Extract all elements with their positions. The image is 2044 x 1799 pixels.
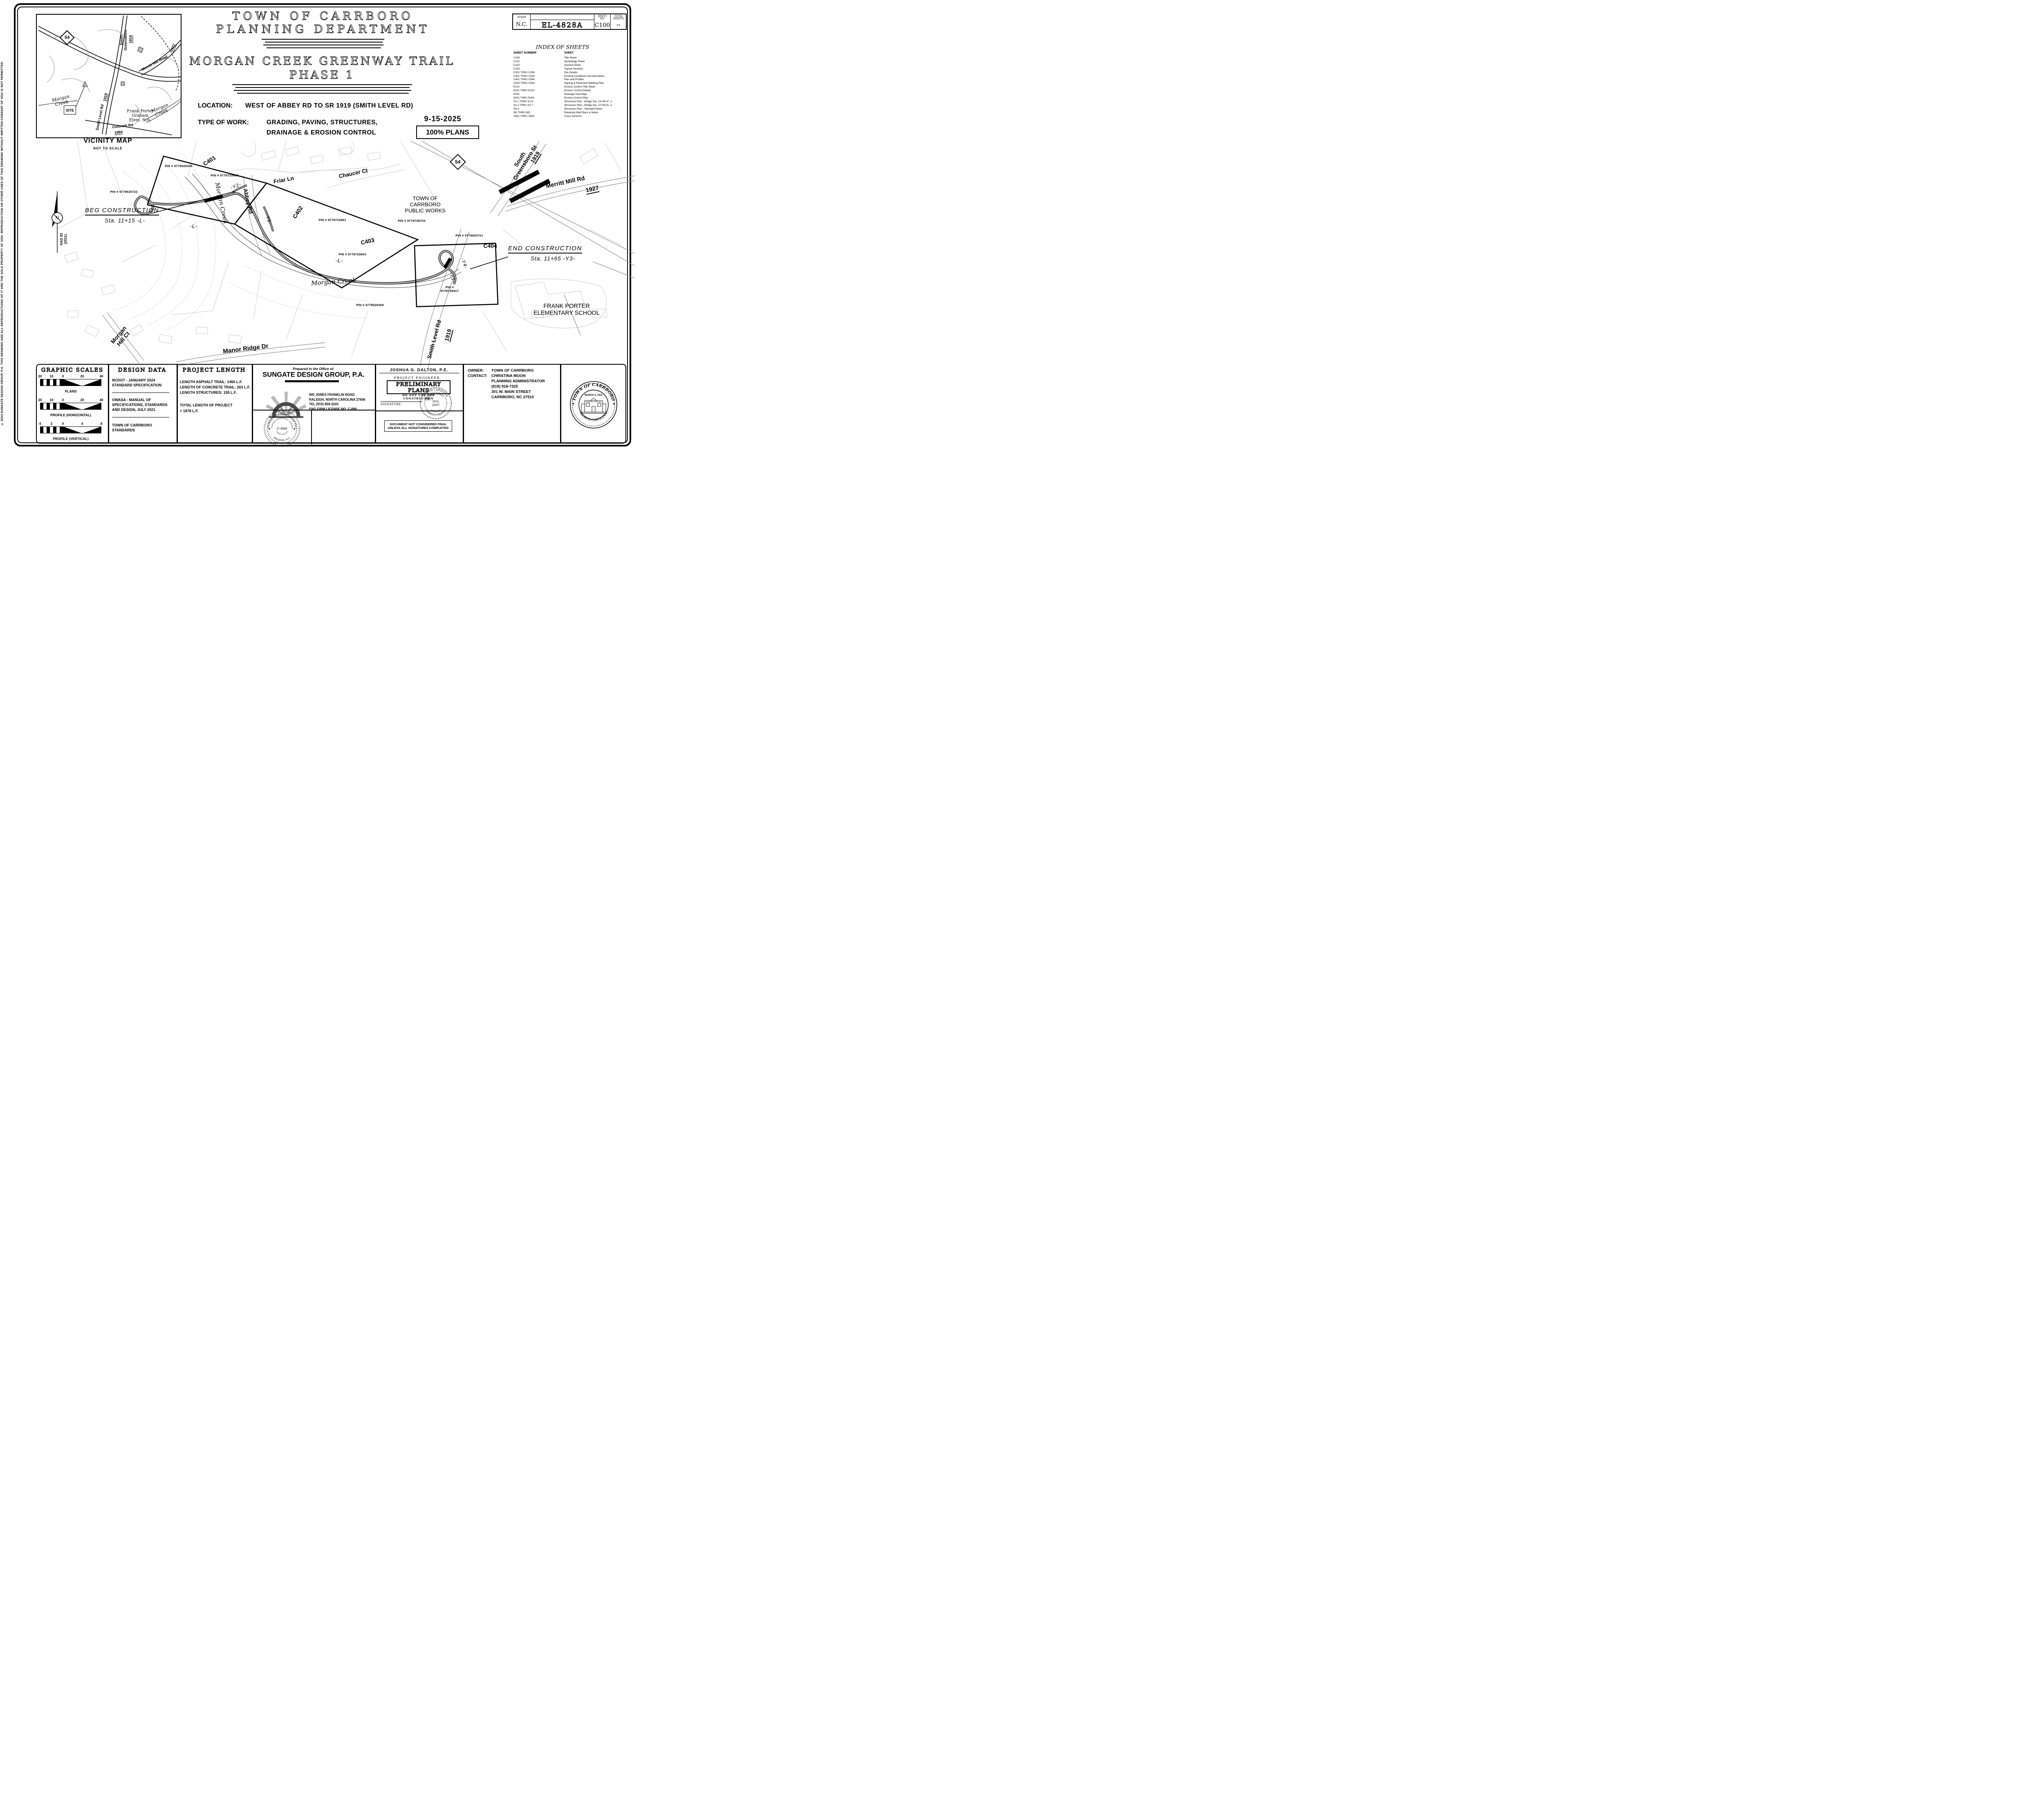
index-row: SN-1Structures Plan - Standard Notes	[513, 108, 613, 111]
final-note-box: DOCUMENT NOT CONSIDERED FINAL UNLESS ALL…	[384, 420, 452, 432]
vicinity-subtitle: NOT TO SCALE	[93, 147, 122, 150]
engineer-name: JOSHUA G. DALTON, P.E.	[390, 368, 448, 372]
owner-label: OWNER:	[468, 368, 491, 373]
pin-label: PIN # 9778729417	[441, 285, 459, 293]
sheet-no-label2: NO.	[600, 18, 605, 20]
index-row: C103Typical Sections	[513, 67, 613, 71]
signature-label: SIGNATURE:	[381, 403, 402, 406]
datum-line: (2011)	[63, 233, 67, 245]
index-cell: E301	[513, 93, 564, 96]
end-construction-line2: Sta. 11+65 -Y3-	[531, 256, 582, 262]
index-cell: Drainage Area Map	[564, 93, 613, 96]
title-rule	[234, 90, 411, 91]
pin-label: PIN # 9778723603	[211, 174, 238, 177]
index-cell: Structures Plan - Bridge Sta. 13+38.47 -…	[564, 100, 613, 104]
school-label: FRANK PORTER ELEMENTARY SCHOOL	[533, 303, 600, 317]
index-cell: Retaining Wall Plans & Notes	[564, 111, 613, 115]
index-row: C401 THRU C404Plan and Profiles	[513, 78, 613, 82]
index-cell: Typical Sections	[564, 67, 613, 71]
index-cell: C100	[513, 56, 564, 60]
tick: 4	[81, 422, 83, 426]
index-cell: Structures Plan - Standard Notes	[564, 108, 613, 111]
engineer-role: PROJECT ENGINEER	[394, 376, 440, 380]
sungate-seal: SUNGATE DESIGN GROUP P.A. PROFESSIONAL E…	[263, 410, 301, 447]
design-data-rule	[112, 393, 169, 393]
route-54-number: 54	[65, 35, 69, 40]
index-row: C201 THRU C206Site Details	[513, 71, 613, 75]
agency-title-line2: PLANNING DEPARTMENT	[216, 23, 430, 36]
scale-bar-profile-h: 20 10 0 20 40 PROFILE (HORIZONTAL)	[40, 398, 101, 417]
index-cell: Symbology Sheet	[564, 60, 613, 64]
index-cell: Plan and Profiles	[564, 78, 613, 82]
work-line1: GRADING, PAVING, STRUCTURES,	[267, 119, 378, 126]
index-cell: Title Sheet	[564, 56, 613, 60]
index-cell: W1 THRU W5	[513, 111, 564, 115]
title-rule	[267, 47, 381, 48]
firm-name: SUNGATE DESIGN GROUP, P.A.	[262, 371, 364, 379]
index-cell: S1-1 THRU S1-8	[513, 100, 564, 104]
location-label: LOCATION:	[198, 102, 233, 110]
seal-number: 2697	[432, 403, 439, 407]
project-title-line2: PHASE 1	[289, 69, 355, 82]
plans-status: 100% PLANS	[426, 128, 469, 137]
title-sheet: { "frame": { "copyright": "© 2024 SUNGAT…	[0, 0, 634, 450]
owner-value: TOWN OF CARRBORO	[491, 368, 533, 373]
tick: 10	[50, 375, 54, 378]
alignment-l: -L-	[336, 258, 343, 264]
design-data-line: NCDOT - JANUARY 2024	[112, 378, 161, 383]
tick: 20	[38, 375, 42, 378]
label-line: Elem. Sch.	[127, 118, 153, 123]
agency-title-line1: TOWN OF CARRBORO	[232, 10, 413, 23]
scale-bar-graphic	[40, 426, 101, 433]
index-cell: Cross Sections	[564, 115, 613, 119]
scale-caption: PLANS	[65, 389, 77, 393]
firm-address-line: 905 JONES FRANKLIN ROAD	[309, 393, 365, 397]
scale-bar-profile-v: 4 2 0 4 8 PROFILE (VERTICAL)	[40, 422, 101, 441]
tick: 40	[100, 398, 103, 402]
project-title-line1: MORGAN CREEK GREENWAY TRAIL	[189, 55, 455, 68]
design-data-rule	[112, 417, 169, 417]
svg-text:RALEIGH, N.C.: RALEIGH, N.C.	[273, 436, 291, 442]
seal-date: MARCH 3, 1911	[585, 394, 603, 397]
index-cell: E101	[513, 85, 564, 89]
scale-bar-graphic	[40, 403, 101, 410]
index-cell: Existing Conditions and Demolition	[564, 75, 613, 79]
index-row: C500 THRU C504Signing & Pavement Marking…	[513, 82, 613, 85]
vicinity-title: VICINITY MAP	[83, 137, 132, 145]
town-seal: • TOWN OF CARRBORO • NORTH CAROLINA MARC…	[569, 380, 618, 429]
project-length-title: PROJECT LENGTH	[183, 367, 246, 373]
index-row: C301 THRU C304Existing Conditions and De…	[513, 75, 613, 79]
firm-address-line: RALEIGH, NORTH CAROLINA 27606	[309, 397, 365, 402]
graphic-scales-title: GRAPHIC SCALES	[41, 367, 103, 373]
index-cell: SN-1	[513, 108, 564, 111]
tick: 0	[62, 398, 64, 402]
town-hall-drawing	[580, 398, 607, 413]
index-row: E201 THRU E210Erosion Control Details	[513, 89, 613, 93]
contact-line: (919) 918-7325	[491, 384, 518, 389]
svg-text:★: ★	[293, 427, 296, 431]
pe-suffix: P.E.	[424, 397, 431, 402]
index-title: INDEX OF SHEETS	[536, 45, 589, 51]
label-line: Graham	[127, 114, 153, 118]
index-row: C100Title Sheet	[513, 56, 613, 60]
index-cell: C401 THRU C404	[513, 78, 564, 82]
project-length-line: LENGTH OF CONCRETE TRAIL: 263 L.F.	[180, 385, 250, 390]
preliminary-stamp: PRELIMINARY PLANS DO NOT USE FOR CONSTRU…	[387, 380, 450, 394]
index-cell: Erosion Control Title Sheet	[564, 85, 613, 89]
index-cell: Erosion Control Plan	[564, 96, 613, 100]
index-cell: S2-1 THRU S2-7	[513, 104, 564, 108]
site-label: SITE	[66, 108, 74, 112]
datum-label: NAD 83 (2011)	[59, 233, 67, 245]
index-cell: C301 THRU C304	[513, 75, 564, 79]
title-rule	[265, 42, 383, 43]
design-data-line: STANDARDS	[112, 428, 152, 433]
alignment-l: -L-	[190, 223, 198, 229]
index-cell: E201 THRU E210	[513, 89, 564, 93]
contact-label: CONTACT:	[468, 373, 491, 379]
tick: 40	[100, 375, 103, 378]
scale-bar-graphic	[40, 379, 101, 386]
firm-address-line: TEL (919) 859-2243	[309, 402, 365, 407]
public-works-line: PUBLIC WORKS	[405, 208, 446, 214]
project-length-line: LENGTH STRUCTURES: 155 L.F.	[180, 390, 250, 395]
end-construction-note: END CONSTRUCTION Sta. 11+65 -Y3-	[508, 245, 582, 262]
index-cell: Erosion Control Details	[564, 89, 613, 93]
public-works-line: TOWN OF	[405, 195, 446, 202]
tick: 2	[51, 422, 52, 426]
index-col-number: SHEET NUMBER	[513, 52, 536, 54]
pin-label: PIN # 9778629408	[356, 303, 383, 307]
engineer-divider	[376, 410, 463, 411]
pin-label: PIN # 9778723881	[318, 218, 346, 222]
north-n-letter: N	[56, 215, 59, 220]
seal-arc: RALEIGH, N.C.	[273, 436, 291, 442]
work-line2: DRAINAGE & EROSION CONTROL	[267, 129, 376, 137]
tick: 20	[38, 398, 42, 402]
end-construction-line1: END CONSTRUCTION	[508, 245, 582, 253]
title-rule	[263, 45, 383, 45]
index-col-sheet: SHEET	[564, 52, 574, 54]
index-cell: C101	[513, 60, 564, 64]
project-length-total: TOTAL LENGTH OF PROJECT	[180, 402, 233, 408]
firm-rule	[285, 380, 339, 382]
beg-construction-line1: BEG CONSTRUCTION	[85, 207, 159, 215]
tick: 4	[39, 422, 41, 426]
tick: 0	[62, 422, 64, 426]
title-rule	[237, 93, 409, 94]
beg-construction-line2: Sta. 11+15 -L-	[105, 218, 159, 224]
tick: 0	[62, 375, 64, 378]
pin-label: PIN # 9778728704	[398, 219, 425, 223]
pin-label: PIN # 9778820701	[455, 234, 483, 238]
design-data-line: OWASA - MANUAL OF	[112, 397, 168, 402]
state-value: N.C.	[516, 22, 527, 28]
index-cell: Structures Plan - Bridge Sta. 27+06.91 -…	[564, 104, 613, 108]
public-works-label: TOWN OF CARRBORO PUBLIC WORKS	[405, 195, 446, 214]
project-length-line: LENGTH ASPHALT TRAIL: 1460 L.F.	[180, 379, 250, 385]
location-value: WEST OF ABBEY RD TO SR 1919 (SMITH LEVEL…	[245, 102, 413, 110]
index-cell: C201 THRU C206	[513, 71, 564, 75]
contact-value: CHRISTINA MOON	[491, 374, 526, 378]
index-cell: C500 THRU C504	[513, 82, 564, 85]
seal-arc: NORTH CAROLINA	[276, 431, 288, 435]
index-row: C102General Notes	[513, 64, 613, 67]
design-data-line: SPECIFICATIONS, STANDARDS	[112, 402, 168, 407]
svg-text:★: ★	[268, 427, 271, 431]
index-cell: C102	[513, 64, 564, 67]
total-sheets-value: --	[616, 22, 620, 28]
index-row: S1-1 THRU S1-8Structures Plan - Bridge S…	[513, 100, 613, 104]
pin-label: PIN # 9778723603	[338, 253, 366, 256]
south-greensboro-label: South Greensboro	[119, 29, 128, 50]
preliminary-line2: DO NOT USE FOR CONSTRUCTION	[388, 394, 450, 400]
state-label: STATE	[517, 16, 526, 19]
route-54-number: 54	[455, 159, 460, 165]
index-row: C101Symbology Sheet	[513, 60, 613, 64]
work-label: TYPE OF WORK:	[198, 119, 249, 126]
index-row: E401 THRU E404Erosion Control Plan	[513, 96, 613, 100]
sr1919-label: 1919	[129, 35, 133, 43]
sheet-limit-c404: C404	[483, 242, 497, 249]
beg-construction-note: BEG CONSTRUCTION Sta. 11+15 -L-	[85, 207, 159, 224]
school-label: Frank Porter Graham Elem. Sch.	[127, 109, 153, 123]
tick: 10	[50, 398, 54, 402]
pin-label: PIN # 9778629408	[165, 164, 192, 168]
prepared-preamble: Prepared In the Office of:	[293, 367, 334, 371]
contact-line: 301 W. MAIN STREET	[491, 390, 531, 394]
design-data-title: DESIGN DATA	[118, 367, 166, 373]
town-hall-label: CARRBORO TOWN HALL	[585, 401, 602, 403]
label-line: South	[119, 29, 123, 50]
pin-line: PIN #	[441, 285, 459, 289]
sheet-info-table: STATE N.C. EL-4828A SHEET NO. C100 TOTAL…	[512, 13, 627, 30]
sheet-no-value: C100	[595, 22, 610, 29]
public-works-line: CARRBORO	[405, 202, 446, 208]
index-row: X501 THRU X509Cross Sections	[513, 115, 613, 119]
tick: 8	[101, 422, 102, 426]
engineer-rule	[379, 373, 459, 373]
pin-line: 9778729417	[441, 289, 459, 293]
datum-line: NAD 83	[59, 233, 63, 245]
index-table: C100Title SheetC101Symbology SheetC102Ge…	[513, 56, 613, 118]
index-cell: X501 THRU X509	[513, 115, 564, 119]
scale-bar-plans: 20 10 0 20 40 PLANS	[40, 375, 101, 393]
project-number: EL-4828A	[542, 21, 583, 29]
plan-date: 9-15-2025	[424, 115, 461, 123]
index-cell: Site Details	[564, 71, 613, 75]
design-data-line: AND DESIGN, JULY 2021	[112, 407, 168, 412]
title-rule	[232, 84, 412, 85]
title-rule	[235, 87, 410, 88]
design-data-line: STANDARD SPECIFICATION	[112, 383, 161, 388]
preliminary-line1: PRELIMINARY PLANS	[388, 381, 450, 394]
index-row: E301Drainage Area Map	[513, 93, 613, 96]
label-line: Greensboro	[123, 29, 128, 50]
firm-address-line: ENG FIRM LICENSE NO. C-890	[309, 407, 365, 412]
index-cell: E401 THRU E404	[513, 96, 564, 100]
school-line: FRANK PORTER	[533, 303, 600, 310]
seal-word: SEAL	[433, 400, 439, 403]
tick: 20	[81, 375, 84, 378]
label-line: Frank Porter	[127, 109, 153, 114]
title-rule	[262, 39, 384, 40]
svg-text:NORTH CAROLINA: NORTH CAROLINA	[276, 431, 288, 435]
design-data-line: TOWN OF CARRBORO	[112, 423, 152, 428]
scale-caption: PROFILE (HORIZONTAL)	[50, 413, 91, 417]
index-cell: Signing & Pavement Marking Plan	[564, 82, 613, 85]
tick: 20	[81, 398, 84, 402]
title-block-row: GRAPHIC SCALES 20 10 0 20 40 PLANS 20 10…	[36, 364, 626, 444]
pin-label: PIN # 9778625722	[110, 190, 137, 194]
project-length-total: = 1878 L.F.	[180, 408, 233, 414]
index-row: W1 THRU W5Retaining Wall Plans & Notes	[513, 111, 613, 115]
plans-status-box: 100% PLANS	[416, 126, 479, 139]
index-row: E101Erosion Control Title Sheet	[513, 85, 613, 89]
seal-number: C-890	[277, 427, 287, 431]
total-sheets-label2: SHEETS	[613, 18, 624, 20]
site-box: SITE	[64, 105, 76, 114]
school-line: ELEMENTARY SCHOOL	[533, 310, 600, 317]
contact-line: CARRBORO, NC 27510	[491, 395, 534, 399]
signature-rule	[381, 402, 422, 402]
vicinity-linework	[37, 15, 181, 137]
index-row: S2-1 THRU S2-7Structures Plan - Bridge S…	[513, 104, 613, 108]
contact-line: PLANNING ADMINISTRATOR	[491, 379, 545, 384]
sr1994-label: 1994	[114, 130, 123, 135]
index-cell: C103	[513, 67, 564, 71]
final-note-line2: UNLESS ALL SIGNATURES COMPLETED	[388, 426, 448, 430]
index-cell: General Notes	[564, 64, 613, 67]
scale-caption: PROFILE (VERTICAL)	[53, 437, 88, 441]
final-note-line1: DOCUMENT NOT CONSIDERED FINAL	[390, 422, 446, 426]
vicinity-map: 54 South Greensboro 1919 Merritt Mill Ro…	[36, 14, 182, 138]
